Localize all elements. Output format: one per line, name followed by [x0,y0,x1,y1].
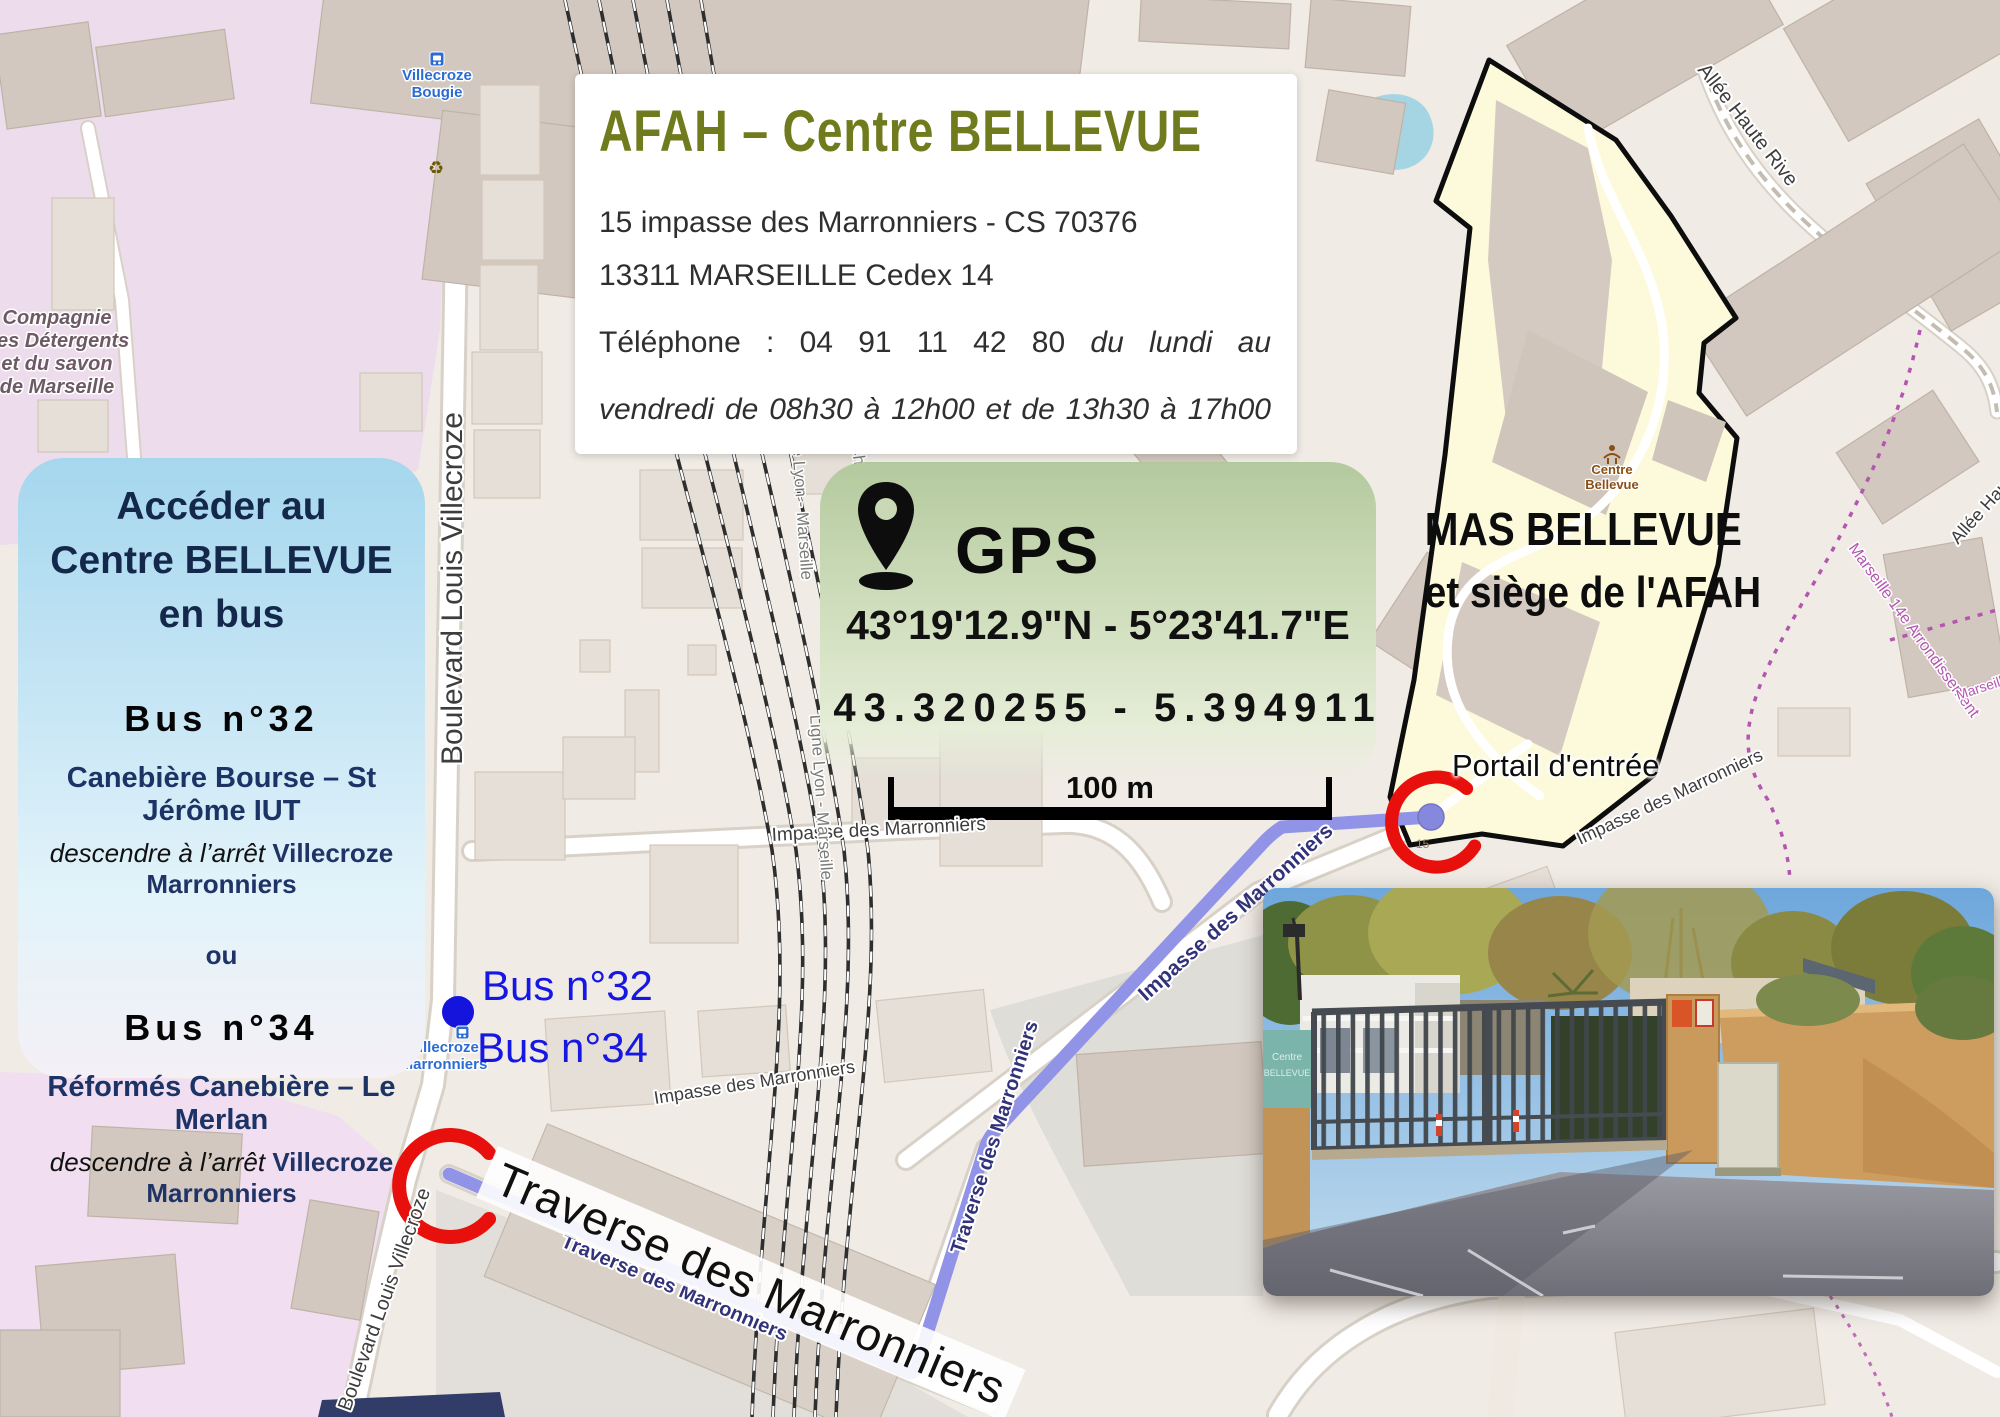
svg-text:Villecroze: Villecroze [402,67,472,84]
bus-box-title-3: en bus [18,588,425,642]
svg-text:Compagnie: Compagnie [3,307,112,329]
recycling-icon: ♻ [428,158,444,178]
svg-text:des Détergents: des Détergents [0,330,129,352]
bus-access-box: Accéder au Centre BELLEVUE en bus Bus n°… [18,458,425,1078]
svg-text:de Marseille: de Marseille [0,376,114,398]
org-title: AFAH – Centre BELLEVUE [599,98,1202,165]
access-map-page: ♻ 100 m Boulevard Louis Villecroze Boule… [0,0,2000,1417]
gps-box: GPS 43°19'12.9"N - 5°23'41.7"E 43.320255… [820,462,1376,780]
bus32-name: Bus n°32 [18,698,425,740]
address-line-1: 15 impasse des Marronniers - CS 70376 [599,206,1271,240]
ochre-wall-left: Centre BELLEVUE [1263,1030,1311,1248]
gps-coordinates-dms: 43°19'12.9"N - 5°23'41.7"E [820,602,1376,649]
street-label-boulevard: Boulevard Louis Villecroze [436,412,469,765]
phone-line: Téléphone : 04 91 11 42 80 du lundi au [599,326,1271,360]
mas-bellevue-line1: MAS BELLEVUE [1425,502,1715,556]
bus32-route: Canebière Bourse – St Jérôme IUT [18,762,425,828]
mas-bellevue-line2: et siège de l'AFAH [1425,568,1715,618]
house-number-15: 15 [1416,837,1430,851]
bus34-map-label: Bus n°34 [477,1024,648,1072]
gate-pillar [1667,995,1719,1163]
compagnie-label: Compagnie des Détergents et du savon de … [0,307,129,398]
address-line-2: 13311 MARSEILLE Cedex 14 [599,259,1271,293]
entrance-photo: Centre BELLEVUE [1263,888,1994,1296]
map-pin-icon [853,480,919,592]
gate [1312,1002,1667,1150]
svg-text:et du savon: et du savon [1,353,112,375]
bus-stop-icon [430,52,444,66]
bus-box-title-2: Centre BELLEVUE [18,534,425,588]
portal-label: Portail d'entrée [1452,748,1660,784]
utility-box [1715,1063,1781,1176]
stop-instruction: descendre à l’arrêt [50,1147,265,1177]
svg-text:Centre: Centre [1591,462,1632,477]
bus-stop-dot [442,996,474,1028]
bus34-name: Bus n°34 [18,1007,425,1049]
bus34-stop-instruction: descendre à l’arrêt Villecroze Marronnie… [18,1147,425,1209]
sign-text-2: BELLEVUE [1264,1068,1311,1078]
sign-text-1: Centre [1272,1052,1302,1063]
svg-text:Bougie: Bougie [412,84,463,101]
bus32-stop-instruction: descendre à l’arrêt Villecroze Marronnie… [18,838,425,900]
route-endpoint-dot [1418,804,1444,830]
phone-hours-part1: du lundi au [1090,326,1271,359]
centre-bellevue-label: Centre Bellevue [1585,462,1638,492]
contact-info-box: AFAH – Centre BELLEVUE 15 impasse des Ma… [575,74,1297,454]
svg-text:Bellevue: Bellevue [1585,477,1638,492]
gps-title: GPS [955,512,1100,588]
bus-box-title-1: Accéder au [18,480,425,534]
bus34-route: Réformés Canebière – Le Merlan [18,1071,425,1137]
phone-hours-part2: vendredi de 08h30 à 12h00 et de 13h30 à … [599,393,1271,427]
bus-stop-icon [456,1026,469,1039]
bus32-map-label: Bus n°32 [482,962,653,1010]
phone-number: Téléphone : 04 91 11 42 80 [599,326,1065,359]
entrance-photo-art: Centre BELLEVUE [1263,888,1994,1296]
separator-ou: ou [18,940,425,971]
stop-instruction: descendre à l’arrêt [50,838,265,868]
gps-coordinates-decimal: 43.320255 - 5.394911 [830,686,1386,731]
bus-stop-label-villecroze-bougie: Villecroze Bougie [402,67,472,101]
